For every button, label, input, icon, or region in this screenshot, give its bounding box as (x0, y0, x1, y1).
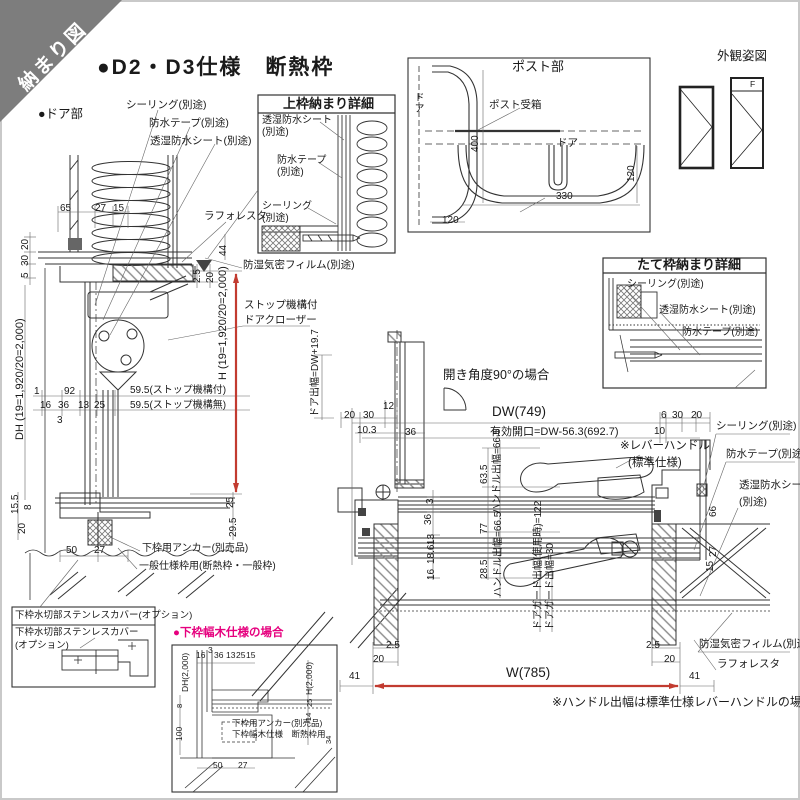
plan-dim-13: 13 (426, 534, 437, 545)
dim-25c: 25 (225, 497, 236, 508)
callout-sealing: シーリング(別途) (126, 100, 207, 112)
dim-13: 13 (78, 400, 89, 411)
callout-sheet: 透湿防水シート(別途) (150, 136, 252, 148)
callout-general-frame: 一般仕様枠用(断熱枠・一般枠) (139, 561, 276, 572)
plan-laforesta: ラフォレスタ (717, 659, 780, 671)
plan-sheet-1: 透湿防水シート (739, 480, 800, 492)
plan-dim-6: 6 (661, 410, 667, 421)
dw-dim: DW(749) (492, 405, 546, 420)
plan-dim-20: 20 (344, 410, 355, 421)
door-part-label: ●ドア部 (38, 108, 83, 122)
guard-dim-1: ドアガード出幅(使用時)=122 (533, 501, 544, 630)
callout-anchor: 下枠用アンカー(別売品) (142, 543, 248, 554)
post-section-box (408, 58, 650, 232)
handle-dim-2: ハンドル出幅=66.5 (493, 512, 504, 597)
habaki-label: 下枠幅木仕様 断熱枠用 (232, 730, 326, 739)
plan-dim-2-5R: 2.5 (646, 640, 660, 651)
w-dim: W(785) (506, 666, 550, 681)
tatewaku-sheet: 透湿防水シート(別途) (659, 305, 756, 316)
plan-dim-15: 15 (705, 561, 716, 572)
habaki-d25: 25 (236, 651, 245, 660)
dim-20b: 20 (17, 523, 28, 534)
handle-dim-1: ハンドル出幅=66.5 (492, 429, 503, 514)
gaikan-f-label: F (750, 80, 755, 89)
kamiwaku-tape-2: (別途) (277, 167, 304, 178)
post-dim-lines (430, 70, 640, 222)
dim-50: 50 (66, 545, 77, 556)
dim-20-rot: 20 (20, 239, 31, 250)
callout-closer-1: ストップ機構付 (244, 300, 318, 312)
elevation-drawings (680, 78, 763, 168)
dim-1: 1 (34, 386, 40, 397)
plan-dim-36: 36 (405, 427, 416, 438)
open-angle-label: 開き角度90°の場合 (443, 369, 549, 383)
plan-dim-20R: 20 (664, 654, 675, 665)
dim-92: 92 (64, 386, 75, 397)
habaki-title: ●下枠幅木仕様の場合 (173, 627, 283, 640)
dim-8: 8 (23, 504, 34, 510)
tatewaku-tape: 防水テープ(別途) (682, 327, 758, 338)
dim-25: 25 (94, 400, 105, 411)
kaikou-dim: 有効開口=DW-56.3(692.7) (490, 426, 618, 438)
habaki-d3: 3 (208, 646, 213, 655)
plan-dim-12: 12 (383, 401, 394, 412)
dim-36: 36 (58, 400, 69, 411)
tatewaku-seal: シーリング(別途) (627, 279, 704, 290)
plan-dim-3: 3 (425, 498, 436, 504)
callout-tape: 防水テープ(別途) (149, 118, 229, 130)
dim-16: 16 (40, 400, 51, 411)
door-width-label: ドア出幅=DW+19.7 (310, 329, 321, 417)
habaki-d15: 15 (246, 651, 255, 660)
plan-dim-36v: 36 (423, 514, 434, 525)
dim-30-rot: 30 (20, 255, 31, 266)
habaki-d25v: 25 (306, 699, 314, 707)
plan-dim-20b: 20 (691, 410, 702, 421)
dim-65: 65 (60, 203, 71, 214)
page-title: ●D2・D3仕様 断熱枠 (97, 56, 334, 79)
lever-label-1: ※レバーハンドル (620, 440, 710, 453)
plan-dim-41L: 41 (349, 671, 360, 682)
kamiwaku-title: 上枠納まり詳細 (283, 97, 374, 111)
post-door-center: ドア (557, 138, 578, 150)
habaki-h: H(2,000) (305, 662, 314, 695)
habaki-d13: 13 (226, 651, 235, 660)
sink-box-label-2: (オプション) (15, 641, 69, 651)
lever-label-2: (標準仕様) (628, 457, 682, 470)
drawing-page: 納まり図 ●D2・D3仕様 断熱枠 ●ドア部 シーリング(別途) 防水テープ(別… (0, 0, 800, 800)
habaki-dh: DH(2,000) (181, 653, 190, 692)
dim-27b: 27 (94, 545, 105, 556)
plan-dim-66: 66 (708, 506, 719, 517)
dim-27: 27 (95, 203, 106, 214)
dim-2-5: 2.5 (192, 269, 203, 283)
habaki-anchor: 下枠用アンカー(別売品) (232, 719, 322, 728)
habaki-d36: 36 (214, 651, 223, 660)
post-door-vertical: ドア (412, 92, 423, 114)
dim-29-5: 29.5 (228, 518, 239, 537)
plan-dim-18-6: 18.6 (426, 545, 437, 564)
dim-stop-without: 59.5(ストップ機構無) (130, 400, 226, 411)
plan-dim-28-5: 28.5 (479, 560, 490, 579)
tatewaku-title: たて枠納まり詳細 (637, 258, 741, 272)
dim-3: 3 (57, 415, 63, 426)
habaki-d27: 27 (238, 761, 247, 770)
post-dim-120r: 120 (626, 165, 637, 182)
habaki-d100: 100 (175, 727, 184, 741)
habaki-d50: 50 (213, 761, 222, 770)
handle-note: ※ハンドル出幅は標準仕様レバーハンドルの場合 (552, 696, 800, 709)
kamiwaku-tape: 防水テープ (277, 155, 326, 166)
sink-box-header: 下枠水切部ステンレスカバー(オプション) (15, 611, 192, 621)
dim-5-rot: 5 (20, 272, 31, 278)
kamiwaku-seal: シーリング (262, 201, 312, 212)
plan-film: 防湿気密フィルム(別途) (699, 639, 800, 651)
post-dim-400: 400 (470, 135, 481, 152)
plan-seal: シーリング(別途) (716, 421, 797, 433)
plan-dim-10-3: 10.3 (357, 425, 376, 436)
habaki-d16: 16 (196, 651, 205, 660)
plan-dim-30b: 30 (672, 410, 683, 421)
plan-dim-63-5: 63.5 (479, 465, 490, 484)
kamiwaku-sheet-2: (別途) (262, 127, 289, 138)
post-title: ポスト部 (512, 60, 564, 74)
plan-dim-16: 16 (426, 569, 437, 580)
plan-dim-2-5L: 2.5 (386, 640, 400, 651)
callout-laforesta: ラフォレスタ (204, 211, 267, 223)
plan-dim-27: 27 (708, 546, 719, 557)
plan-dim-30: 30 (363, 410, 374, 421)
guard-dim-2: ドアガード出幅=30 (545, 543, 556, 630)
kamiwaku-sheet: 透湿防水シート (262, 115, 332, 126)
plan-dim-20L: 20 (373, 654, 384, 665)
dim-44: 44 (218, 245, 229, 256)
callout-closer-2: ドアクローザー (244, 315, 317, 327)
gaikan-title: 外観姿図 (717, 50, 767, 64)
dim-15: 15 (113, 203, 124, 214)
post-receiver-top: ポスト受箱 (489, 100, 542, 112)
plan-dim-10: 10 (654, 426, 665, 437)
plan-dim-77: 77 (479, 523, 490, 534)
dim-h: H (19=1,920/20=2,000) (217, 266, 229, 380)
post-dim-330: 330 (556, 191, 573, 202)
dim-stop-with: 59.5(ストップ機構付) (130, 385, 226, 396)
left-dim-lines (18, 110, 310, 569)
plan-dim-41R: 41 (689, 671, 700, 682)
dim-15-5: 15.5 (10, 495, 21, 514)
habaki-d34: 34 (325, 736, 333, 744)
cad-line-art (0, 0, 800, 800)
plan-tape: 防水テープ(別途) (726, 449, 800, 461)
post-dim-120b: 120 (442, 215, 459, 226)
dim-20r: 20 (205, 272, 216, 283)
dim-dh: DH (19=1,920/20=2,000) (14, 318, 26, 440)
plan-sheet-2: (別途) (739, 497, 767, 509)
callout-film: 防湿気密フィルム(別途) (243, 260, 355, 272)
habaki-d8: 8 (176, 704, 184, 708)
sink-box-label-1: 下枠水切部ステンレスカバー (15, 628, 139, 638)
kamiwaku-seal-2: (別途) (262, 213, 289, 224)
